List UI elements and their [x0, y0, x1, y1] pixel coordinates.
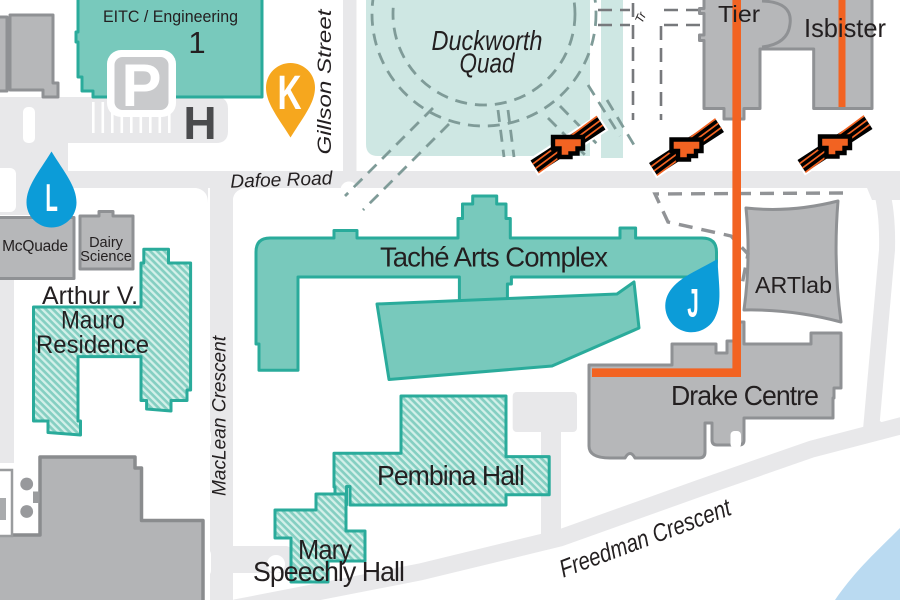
svg-text:1: 1	[188, 25, 205, 60]
svg-text:Residence: Residence	[36, 331, 149, 359]
svg-text:Pembina Hall: Pembina Hall	[377, 460, 524, 491]
svg-text:Drake Centre: Drake Centre	[671, 380, 818, 411]
svg-text:Isbister: Isbister	[804, 13, 886, 43]
svg-text:Speechly Hall: Speechly Hall	[253, 556, 404, 587]
svg-text:K: K	[278, 67, 302, 120]
svg-text:Gillson Street: Gillson Street	[315, 9, 336, 155]
svg-text:MacLean Crescent: MacLean Crescent	[210, 335, 231, 496]
svg-text:Tier: Tier	[718, 1, 760, 27]
svg-text:ARTlab: ARTlab	[755, 272, 832, 298]
svg-text:EITC / Engineering: EITC / Engineering	[103, 7, 238, 26]
svg-text:Taché Arts Complex: Taché Arts Complex	[380, 242, 608, 273]
svg-text:McQuade: McQuade	[2, 238, 68, 255]
svg-text:J: J	[687, 282, 699, 326]
svg-text:Dafoe Road: Dafoe Road	[230, 168, 334, 193]
svg-text:Science: Science	[80, 249, 132, 265]
svg-text:Quad: Quad	[460, 48, 516, 79]
svg-text:L: L	[45, 177, 58, 220]
svg-text:P: P	[121, 52, 161, 119]
svg-text:H: H	[183, 97, 216, 149]
